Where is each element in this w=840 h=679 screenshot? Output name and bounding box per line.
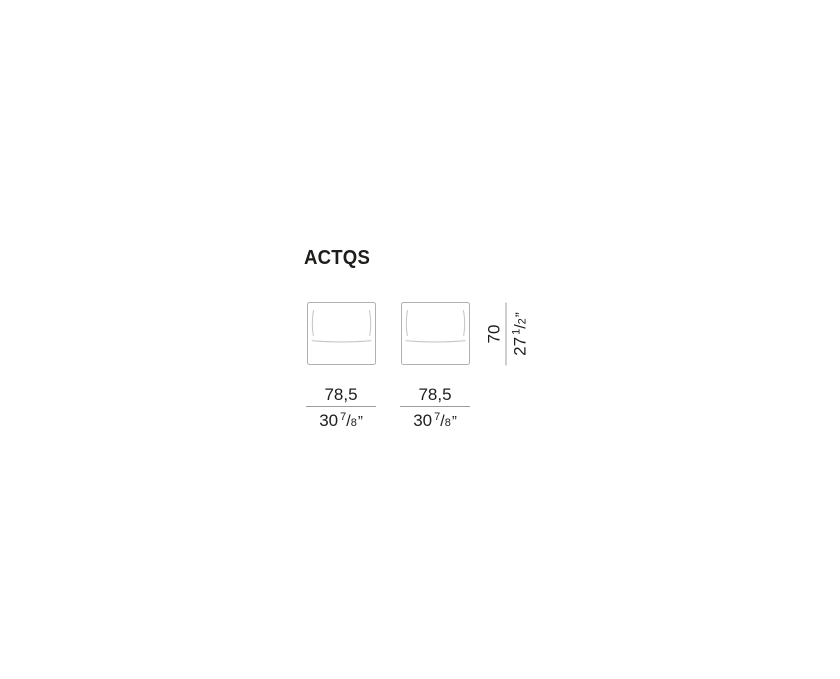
inch-mark: ” — [452, 413, 457, 430]
product-code-title: ACTQS — [304, 247, 370, 270]
fraction-slash: / — [513, 324, 530, 328]
spec-sheet: ACTQS 78,5 307/8” 78,5 307/8” 70 271/2” — [0, 0, 840, 679]
width-dimension-2: 78,5 307/8” — [400, 386, 470, 433]
height-metric-value: 70 — [486, 303, 506, 366]
inch-mark: ” — [358, 413, 363, 430]
armchair-front-drawing-1 — [307, 302, 376, 365]
imperial-denominator: 8 — [351, 417, 357, 429]
imperial-denominator: 8 — [445, 417, 451, 429]
module-outline — [308, 303, 376, 365]
seat-edge-line — [312, 341, 371, 342]
width-dimension-1: 78,5 307/8” — [306, 386, 376, 433]
height-dimension: 70 271/2” — [486, 303, 533, 366]
inch-mark: ” — [513, 312, 530, 317]
cushion-right-seam — [464, 311, 465, 336]
imperial-whole: 27 — [511, 337, 530, 356]
seat-edge-line — [406, 341, 465, 342]
imperial-whole: 30 — [413, 411, 432, 430]
height-imperial-value: 271/2” — [507, 303, 533, 366]
cushion-right-seam — [370, 311, 371, 336]
imperial-whole: 30 — [319, 411, 338, 430]
imperial-numerator: 1 — [511, 329, 523, 335]
width-imperial-value: 307/8” — [400, 407, 470, 433]
module-outline — [402, 303, 470, 365]
cushion-left-seam — [406, 311, 407, 336]
width-imperial-value: 307/8” — [306, 407, 376, 433]
cushion-left-seam — [312, 311, 313, 336]
width-metric-value: 78,5 — [400, 386, 470, 406]
armchair-front-drawing-2 — [401, 302, 470, 365]
width-metric-value: 78,5 — [306, 386, 376, 406]
imperial-denominator: 2 — [517, 318, 529, 324]
